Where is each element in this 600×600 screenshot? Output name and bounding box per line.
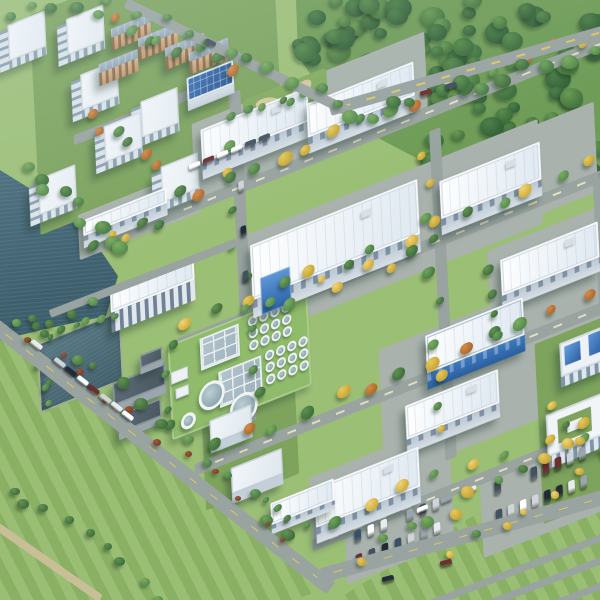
- end-wall: [166, 187, 173, 215]
- tree: [17, 499, 29, 509]
- aerial-industrial-park-rendering: [0, 0, 600, 600]
- tree: [104, 543, 112, 550]
- digester-tank: [260, 334, 270, 348]
- tree: [65, 516, 74, 523]
- shrub: [76, 369, 84, 376]
- digester-tank: [287, 339, 297, 353]
- tree: [500, 450, 509, 461]
- tree: [6, 12, 16, 21]
- tree: [74, 218, 86, 228]
- shrub: [153, 439, 161, 446]
- tree: [515, 59, 529, 71]
- tree: [494, 74, 511, 89]
- tree: [367, 114, 379, 124]
- shrub: [280, 538, 284, 542]
- end-wall: [194, 258, 202, 300]
- tree: [404, 98, 415, 107]
- clarifier-tank: [198, 376, 225, 414]
- side-wall: [57, 23, 68, 67]
- shrub: [235, 496, 241, 501]
- tree: [10, 488, 19, 496]
- digester-tank: [288, 363, 298, 377]
- tree: [421, 516, 434, 527]
- car: [568, 479, 575, 495]
- plant-shed: [171, 366, 188, 385]
- digester-tank: [271, 317, 281, 331]
- tree: [495, 476, 504, 483]
- tree: [317, 83, 328, 93]
- tree: [12, 319, 21, 327]
- tree: [538, 453, 552, 464]
- aeration-basin: [200, 323, 241, 371]
- tree: [45, 320, 54, 328]
- tree: [461, 486, 474, 497]
- tree: [134, 398, 148, 410]
- digester-tank: [271, 329, 281, 343]
- tree: [474, 83, 488, 95]
- tree: [28, 315, 37, 323]
- tree: [203, 459, 212, 467]
- digester-tank: [282, 313, 292, 327]
- tree: [114, 557, 125, 566]
- car: [544, 489, 551, 505]
- tree: [36, 184, 50, 196]
- tree: [378, 534, 388, 542]
- tree: [67, 310, 77, 319]
- car: [567, 451, 574, 467]
- tree: [32, 322, 41, 329]
- tree: [86, 529, 95, 537]
- car: [530, 466, 537, 482]
- side-wall: [71, 79, 82, 123]
- tree: [89, 362, 97, 369]
- tree: [45, 3, 57, 13]
- tree: [503, 522, 512, 530]
- tree: [40, 330, 48, 337]
- tree: [520, 509, 527, 515]
- tree: [575, 468, 584, 475]
- digester-tank: [265, 360, 275, 374]
- digester-tank: [277, 368, 287, 382]
- tree: [153, 596, 163, 600]
- tree: [417, 150, 426, 161]
- tree: [575, 437, 585, 445]
- digester-tank: [249, 338, 259, 352]
- tree: [562, 438, 574, 448]
- tree: [262, 495, 269, 504]
- end-wall: [138, 49, 145, 71]
- digester-tank: [282, 325, 292, 339]
- digester-tank: [299, 347, 309, 361]
- tree: [561, 55, 578, 69]
- clarifier-tank: [181, 410, 197, 432]
- end-wall: [162, 347, 168, 366]
- car: [555, 456, 562, 472]
- tree: [472, 530, 481, 538]
- tree: [88, 297, 99, 306]
- tree: [178, 316, 191, 333]
- tree: [333, 100, 343, 108]
- tree: [183, 435, 193, 444]
- plant-shed: [175, 384, 189, 399]
- digester-tank: [288, 351, 298, 365]
- car: [580, 474, 587, 490]
- car: [579, 446, 586, 462]
- tree: [112, 241, 128, 254]
- tree: [337, 383, 351, 401]
- tree: [60, 186, 72, 196]
- tree: [590, 46, 600, 55]
- tree: [539, 60, 554, 73]
- tree: [286, 77, 299, 88]
- digester-tank: [298, 335, 308, 349]
- tree: [185, 30, 193, 37]
- utility-building: [140, 347, 163, 369]
- tree: [250, 489, 261, 498]
- tree: [468, 457, 480, 471]
- digester-tank: [260, 322, 270, 336]
- tree: [304, 521, 311, 529]
- digester-tank: [265, 348, 275, 362]
- shrub: [185, 451, 192, 457]
- digester-tank: [276, 344, 286, 358]
- tree: [95, 221, 110, 234]
- tree: [241, 53, 252, 62]
- digester-tank: [299, 359, 309, 373]
- tree: [518, 465, 527, 473]
- tree: [211, 301, 223, 316]
- digester-tank: [276, 356, 286, 370]
- tree: [23, 162, 35, 172]
- side-wall: [94, 131, 105, 175]
- digester-tank: [266, 372, 276, 386]
- tree: [551, 491, 560, 499]
